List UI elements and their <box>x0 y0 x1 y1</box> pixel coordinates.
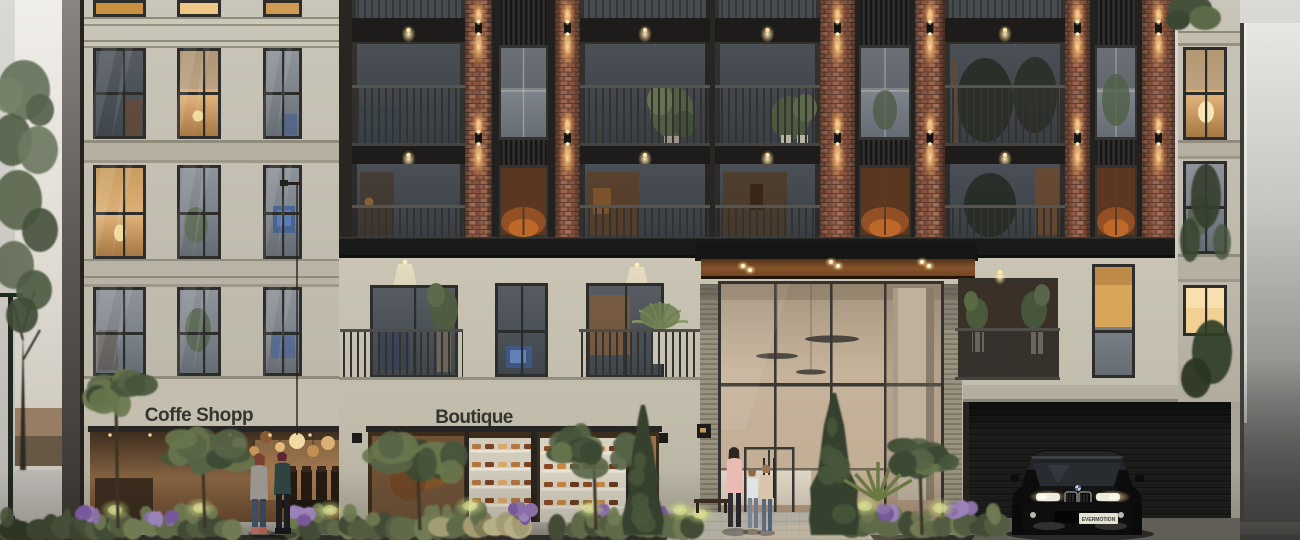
svg-text:Coffe Shopp: Coffe Shopp <box>145 405 254 426</box>
svg-text:Boutique: Boutique <box>435 407 513 428</box>
